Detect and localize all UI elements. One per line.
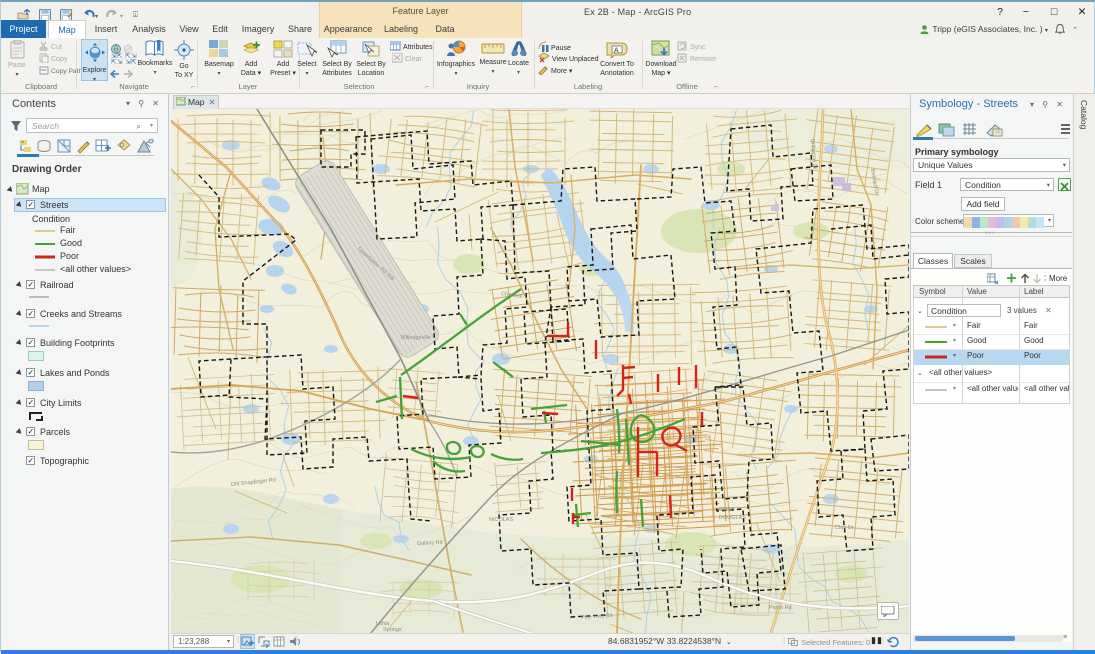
svg-text:NICOLAS: NICOLAS: [489, 517, 513, 523]
svg-text:COBB: COBB: [719, 507, 735, 513]
svg-text:Pams Rd: Pams Rd: [769, 605, 792, 611]
svg-text:Milledgeville: Milledgeville: [401, 335, 431, 341]
svg-text:▾: ▾: [95, 14, 98, 19]
svg-text:A: A: [614, 48, 619, 55]
svg-text:Club Dr: Club Dr: [835, 525, 854, 531]
svg-text:▾: ▾: [120, 14, 123, 19]
svg-text:DOUGLAS: DOUGLAS: [719, 515, 746, 521]
